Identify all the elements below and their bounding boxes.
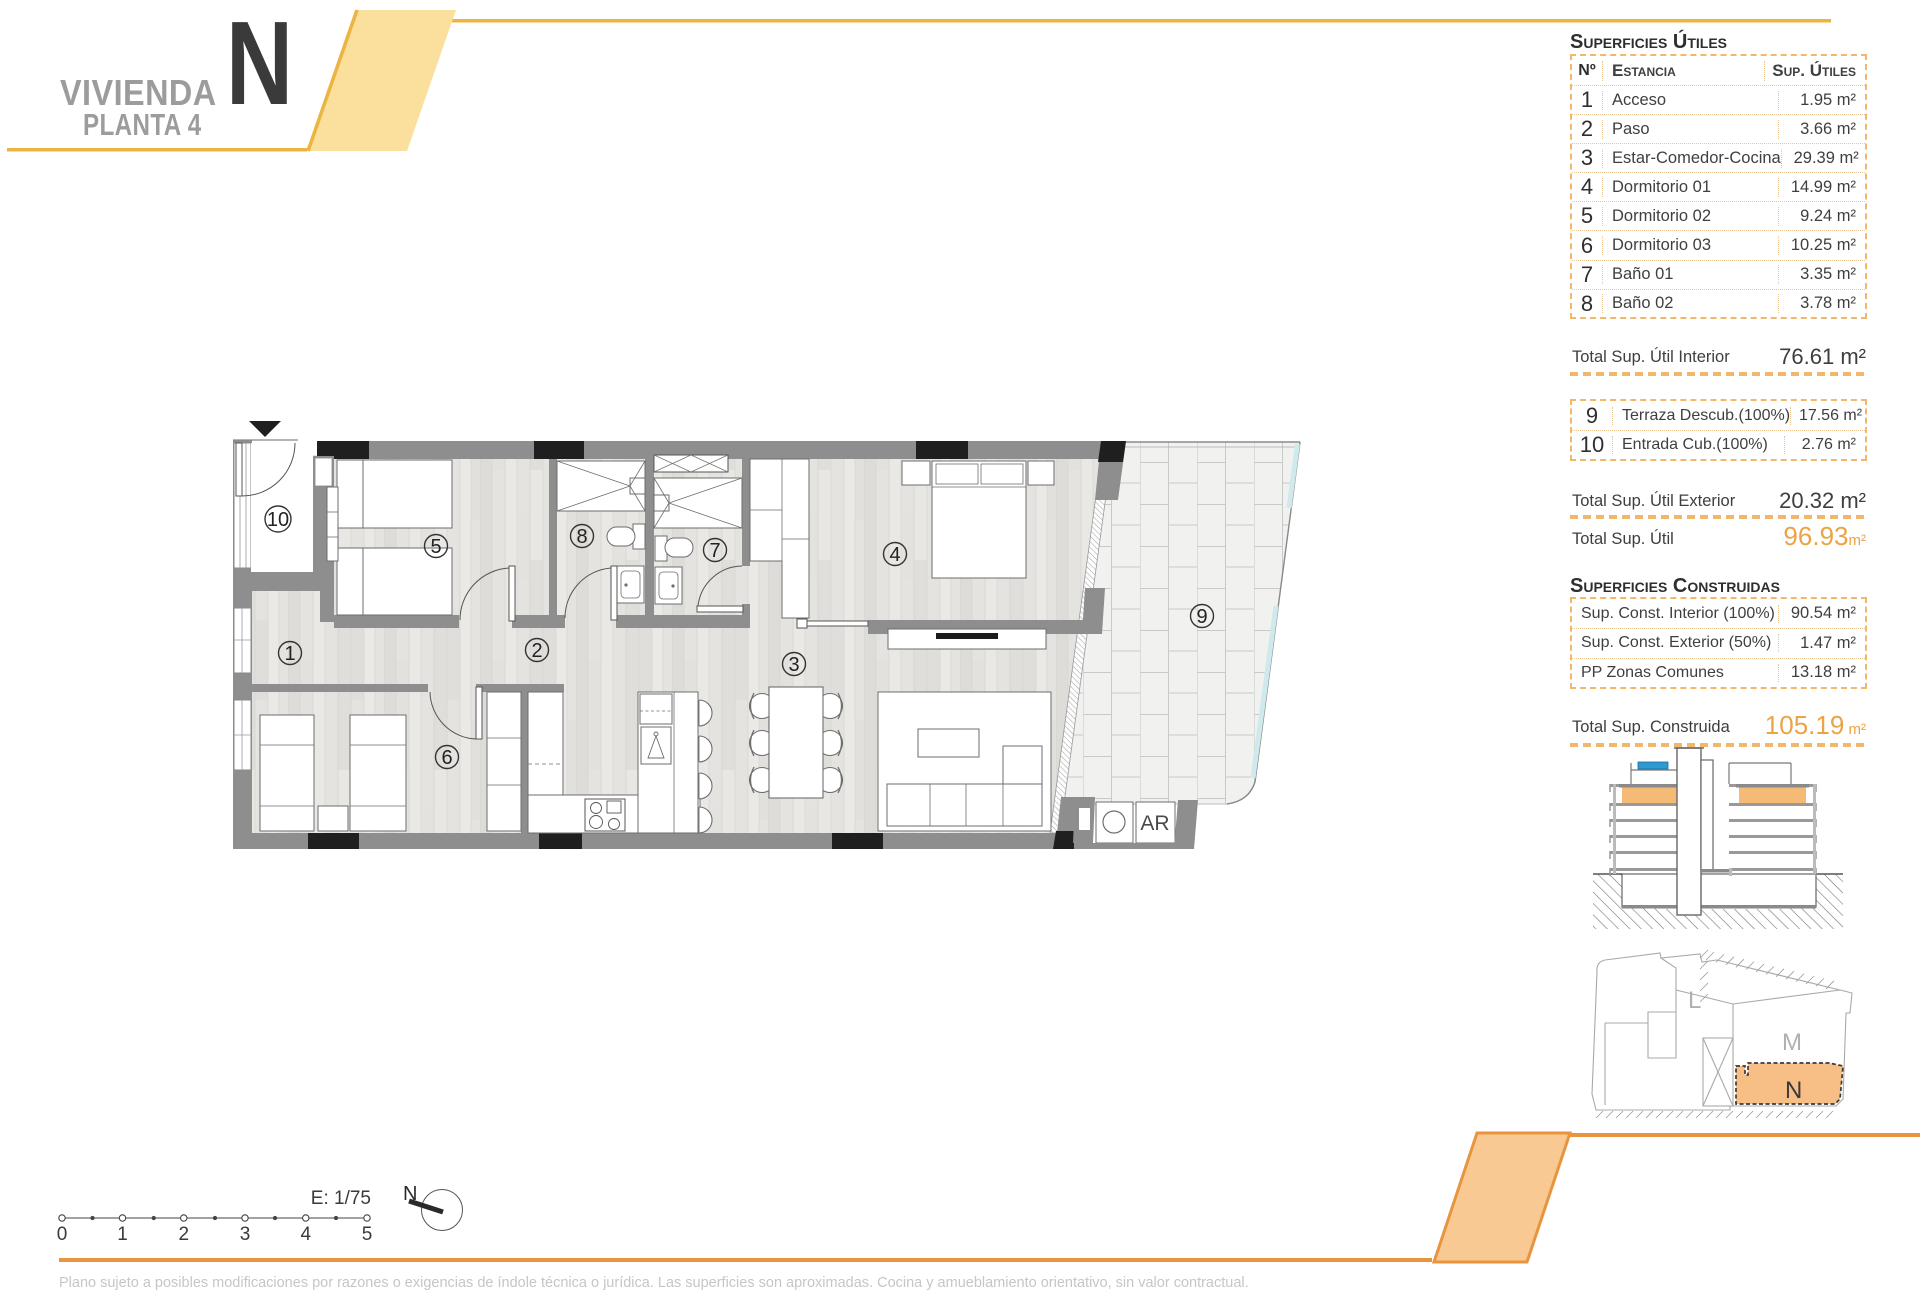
svg-text:5: 5	[430, 536, 441, 558]
svg-text:10: 10	[267, 509, 289, 531]
svg-text:N: N	[1785, 1077, 1802, 1104]
svg-text:4: 4	[300, 1224, 311, 1245]
svg-text:2: 2	[531, 640, 542, 662]
svg-text:AR: AR	[1140, 812, 1169, 835]
svg-text:1: 1	[284, 643, 295, 665]
svg-text:9: 9	[1196, 606, 1207, 628]
svg-text:2: 2	[178, 1224, 189, 1245]
svg-text:0: 0	[57, 1224, 68, 1245]
svg-text:M: M	[1782, 1029, 1802, 1056]
svg-text:3: 3	[788, 654, 799, 676]
svg-text:4: 4	[889, 544, 900, 566]
svg-text:L: L	[1688, 987, 1701, 1014]
svg-text:E: 1/75: E: 1/75	[311, 1188, 371, 1209]
svg-text:3: 3	[240, 1224, 251, 1245]
svg-text:6: 6	[441, 747, 452, 769]
svg-text:5: 5	[362, 1224, 373, 1245]
svg-text:8: 8	[576, 526, 587, 548]
svg-text:1: 1	[117, 1224, 128, 1245]
svg-text:7: 7	[709, 540, 720, 562]
